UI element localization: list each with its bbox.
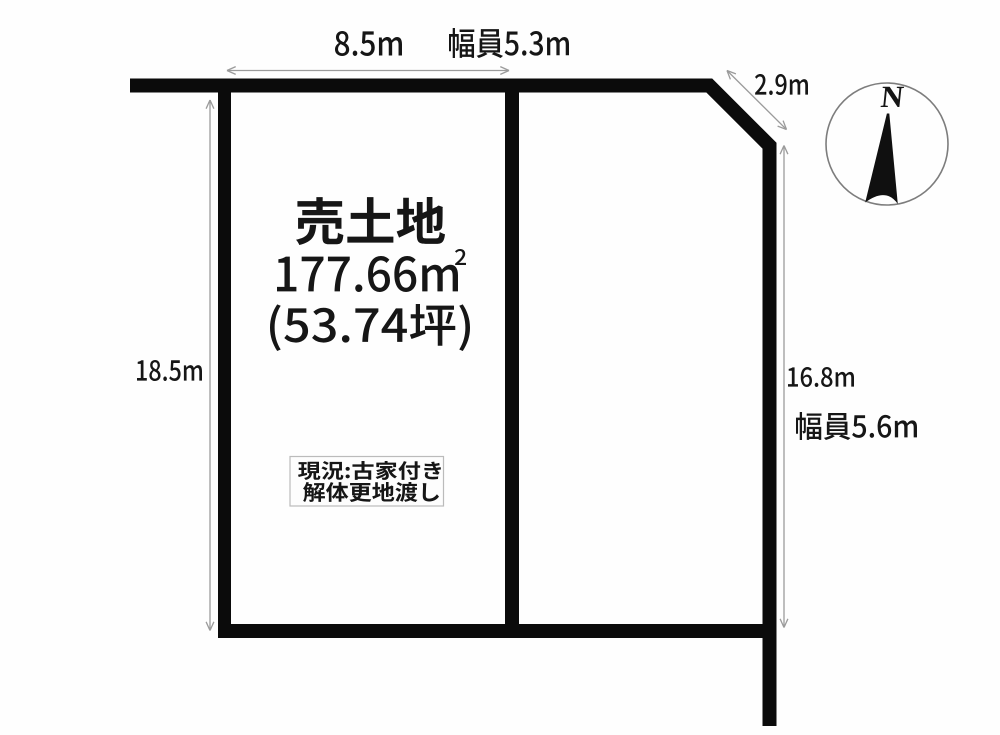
svg-text:N: N	[879, 79, 906, 114]
